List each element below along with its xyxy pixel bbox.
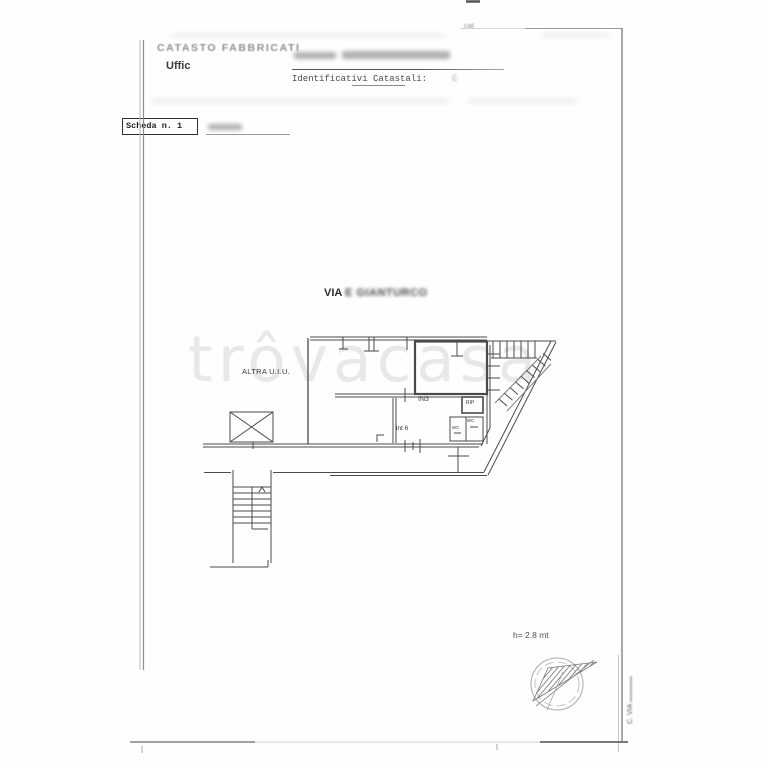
floor-plan-drawing — [0, 0, 768, 768]
cadastral-sheet-scan: trôvacasa CATASTO FABBRICATI Uffic cat I… — [0, 0, 768, 768]
page-frame — [130, 2, 628, 754]
surveyor-stamp-icon — [531, 658, 597, 710]
floor-plan-lines — [203, 337, 556, 567]
